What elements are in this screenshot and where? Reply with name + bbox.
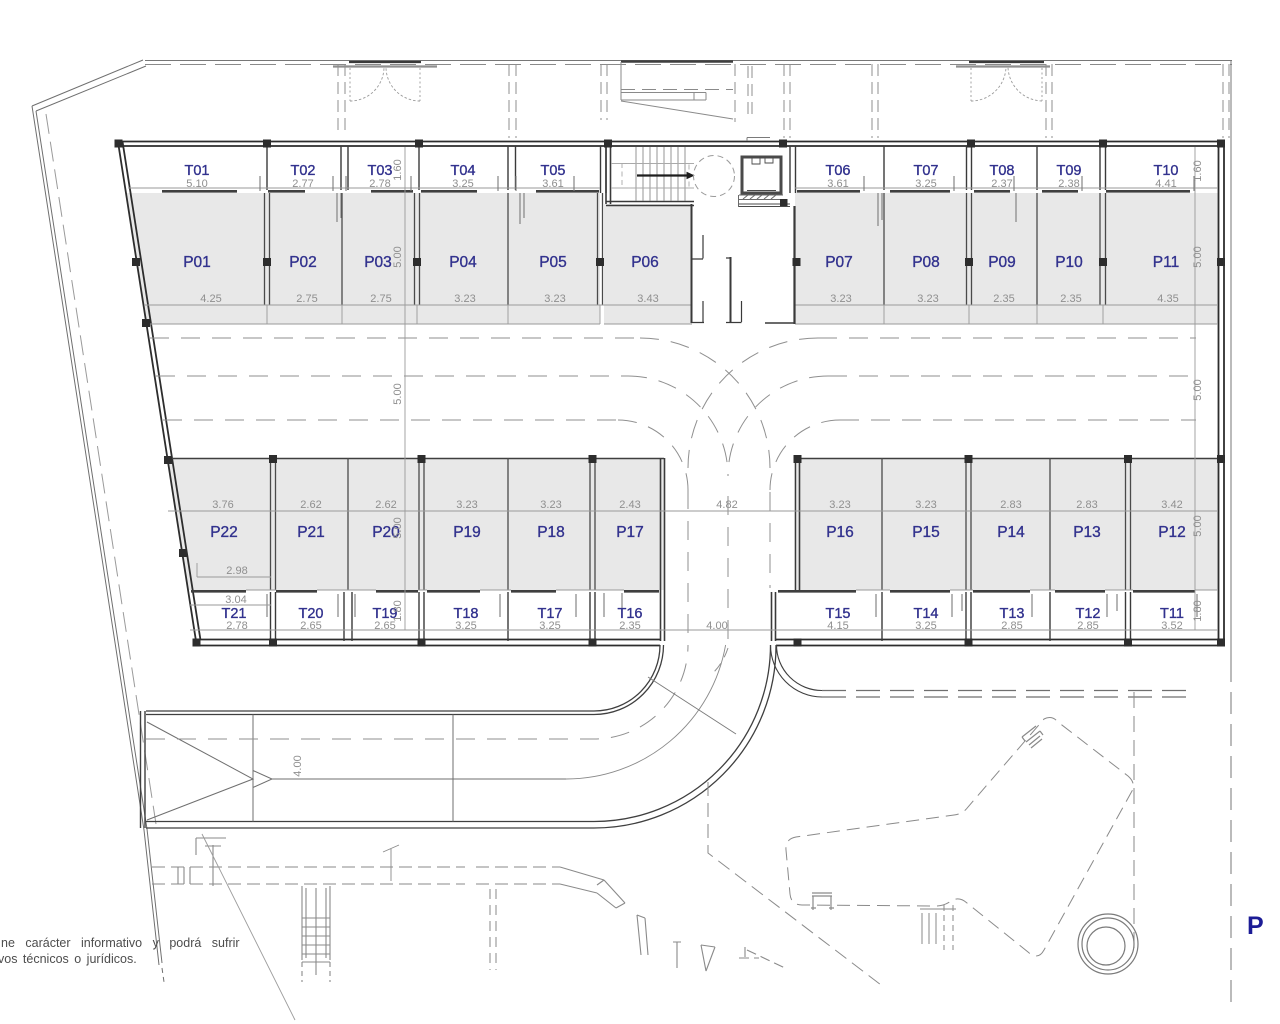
svg-text:2.35: 2.35: [993, 293, 1014, 305]
svg-text:4.82: 4.82: [716, 499, 737, 511]
svg-text:T08: T08: [990, 163, 1015, 179]
svg-text:3.76: 3.76: [212, 499, 233, 511]
svg-text:2.83: 2.83: [1076, 499, 1097, 511]
svg-text:P19: P19: [453, 524, 481, 541]
svg-text:3.61: 3.61: [827, 178, 848, 190]
svg-text:4.25: 4.25: [200, 293, 221, 305]
svg-text:3.23: 3.23: [830, 293, 851, 305]
svg-text:5.00: 5.00: [392, 383, 404, 404]
svg-text:P11: P11: [1153, 254, 1179, 271]
svg-text:3.23: 3.23: [544, 293, 565, 305]
svg-text:P14: P14: [997, 524, 1025, 541]
svg-text:3.25: 3.25: [539, 620, 560, 632]
svg-text:3.25: 3.25: [455, 620, 476, 632]
svg-text:3.23: 3.23: [454, 293, 475, 305]
svg-text:2.65: 2.65: [300, 620, 321, 632]
svg-text:T02: T02: [291, 163, 316, 179]
svg-text:2.35: 2.35: [619, 620, 640, 632]
svg-text:1.80: 1.80: [1192, 600, 1204, 621]
svg-text:P08: P08: [912, 254, 940, 271]
svg-text:5.10: 5.10: [186, 178, 207, 190]
svg-text:3.25: 3.25: [915, 620, 936, 632]
svg-text:3.23: 3.23: [540, 499, 561, 511]
svg-text:2.75: 2.75: [370, 293, 391, 305]
svg-text:T04: T04: [451, 163, 476, 179]
svg-text:T06: T06: [826, 163, 851, 179]
svg-text:2.98: 2.98: [226, 565, 247, 577]
svg-text:P17: P17: [616, 524, 644, 541]
svg-text:2.62: 2.62: [375, 499, 396, 511]
svg-text:1.80: 1.80: [392, 600, 404, 621]
svg-text:vos técnicos o jurídicos.: vos técnicos o jurídicos.: [0, 952, 137, 966]
svg-text:4.00: 4.00: [292, 755, 304, 776]
svg-text:2.83: 2.83: [1000, 499, 1021, 511]
svg-text:5.00: 5.00: [392, 246, 404, 267]
svg-text:T01: T01: [185, 163, 210, 179]
svg-text:P13: P13: [1073, 524, 1101, 541]
svg-text:5.00: 5.00: [392, 517, 404, 538]
svg-text:P18: P18: [537, 524, 565, 541]
svg-text:2.62: 2.62: [300, 499, 321, 511]
svg-text:P21: P21: [297, 524, 325, 541]
svg-text:P03: P03: [364, 254, 392, 271]
svg-text:P09: P09: [988, 254, 1016, 271]
svg-text:4.15: 4.15: [827, 620, 848, 632]
svg-text:2.78: 2.78: [226, 620, 247, 632]
svg-text:3.25: 3.25: [915, 178, 936, 190]
svg-text:3.61: 3.61: [542, 178, 563, 190]
svg-text:3.43: 3.43: [637, 293, 658, 305]
svg-text:4.00: 4.00: [706, 620, 727, 632]
svg-text:T07: T07: [914, 163, 939, 179]
svg-text:P12: P12: [1158, 524, 1186, 541]
svg-text:4.41: 4.41: [1155, 178, 1176, 190]
svg-text:P02: P02: [289, 254, 317, 271]
svg-text:2.37: 2.37: [991, 178, 1012, 190]
svg-text:3.25: 3.25: [452, 178, 473, 190]
svg-text:2.85: 2.85: [1077, 620, 1098, 632]
svg-text:P07: P07: [825, 254, 853, 271]
svg-text:5.00: 5.00: [1192, 246, 1204, 267]
svg-text:3.23: 3.23: [917, 293, 938, 305]
svg-text:3.52: 3.52: [1161, 620, 1182, 632]
svg-text:T10: T10: [1154, 163, 1179, 179]
svg-text:2.78: 2.78: [369, 178, 390, 190]
svg-text:P05: P05: [539, 254, 567, 271]
svg-text:P10: P10: [1055, 254, 1083, 271]
svg-text:2.77: 2.77: [292, 178, 313, 190]
svg-text:1.60: 1.60: [1192, 160, 1204, 181]
svg-text:P: P: [1247, 912, 1264, 940]
svg-text:P01: P01: [183, 254, 211, 271]
svg-text:3.23: 3.23: [456, 499, 477, 511]
svg-text:T03: T03: [368, 163, 393, 179]
svg-text:P22: P22: [210, 524, 238, 541]
svg-text:2.43: 2.43: [619, 499, 640, 511]
svg-text:2.35: 2.35: [1060, 293, 1081, 305]
svg-text:P15: P15: [912, 524, 940, 541]
svg-text:3.23: 3.23: [915, 499, 936, 511]
svg-text:P06: P06: [631, 254, 659, 271]
svg-text:5.00: 5.00: [1192, 379, 1204, 400]
svg-text:3.04: 3.04: [225, 594, 246, 606]
svg-text:2.75: 2.75: [296, 293, 317, 305]
svg-text:2.38: 2.38: [1058, 178, 1079, 190]
svg-text:ne carácter informativo y podr: ne carácter informativo y podrá sufrir: [1, 936, 240, 950]
svg-text:2.85: 2.85: [1001, 620, 1022, 632]
svg-text:T09: T09: [1057, 163, 1082, 179]
svg-text:5.00: 5.00: [1192, 515, 1204, 536]
svg-text:1.60: 1.60: [392, 159, 404, 180]
svg-text:P04: P04: [449, 254, 477, 271]
svg-text:P16: P16: [826, 524, 854, 541]
svg-text:4.35: 4.35: [1157, 293, 1178, 305]
svg-text:3.23: 3.23: [829, 499, 850, 511]
svg-text:3.42: 3.42: [1161, 499, 1182, 511]
svg-text:T05: T05: [541, 163, 566, 179]
